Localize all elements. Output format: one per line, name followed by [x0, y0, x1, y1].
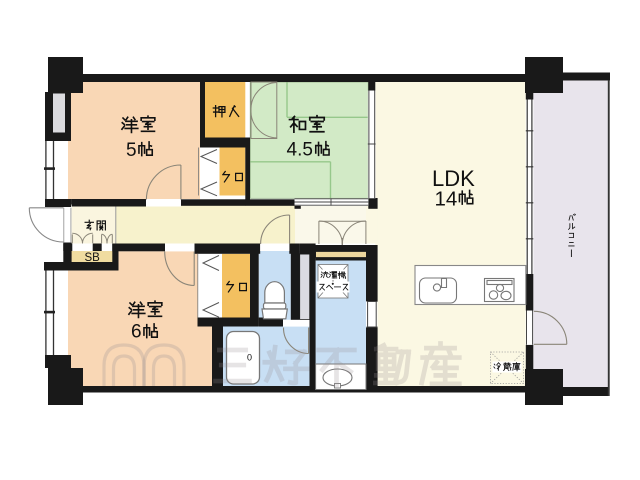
svg-text:0: 0: [247, 353, 252, 363]
svg-text:14: 14: [435, 188, 458, 211]
svg-text:4.5: 4.5: [287, 140, 313, 161]
svg-text:5: 5: [126, 140, 137, 161]
svg-text:6: 6: [131, 322, 142, 343]
svg-text:SB: SB: [85, 252, 101, 264]
